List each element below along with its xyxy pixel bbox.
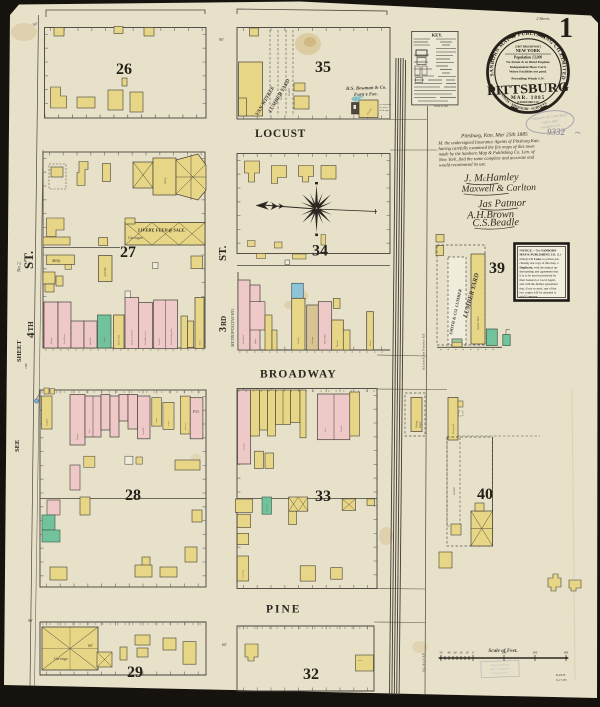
svg-text:Hotel: Hotel: [369, 340, 372, 347]
svg-text:K.H.H.: K.H.H.: [555, 673, 566, 677]
svg-text:No Steam & m Hand Engines: No Steam & m Hand Engines: [506, 60, 550, 64]
svg-text:Genl.& Drug Sto: Genl.& Drug Sto: [170, 328, 173, 345]
svg-text:Drugs & Stat'ry: Drugs & Stat'ry: [131, 329, 134, 346]
svg-text:ST.: ST.: [217, 245, 229, 261]
svg-text:SEE: SEE: [14, 440, 21, 452]
svg-text:Jas Patmor: Jas Patmor: [478, 198, 527, 210]
svg-text:50: 50: [440, 651, 444, 655]
svg-text:(CRAWFORD CO): (CRAWFORD CO): [517, 101, 539, 104]
svg-text:33: 33: [315, 488, 331, 505]
svg-text:9332: 9332: [547, 127, 566, 137]
svg-text:Independent Hose Carts: Independent Hose Carts: [510, 65, 547, 69]
svg-text:1: 1: [559, 13, 573, 44]
svg-text:PINE: PINE: [266, 604, 301, 616]
svg-text:6-17-85: 6-17-85: [556, 678, 567, 682]
svg-text:Genl.S.: Genl.S.: [297, 337, 300, 344]
svg-text:METROPOLITAN HO.: METROPOLITAN HO.: [230, 308, 235, 348]
svg-text:90': 90': [219, 37, 224, 42]
svg-text:Gro.: Gro.: [88, 428, 91, 433]
svg-text:40: 40: [448, 651, 452, 655]
svg-text:Furn.: Furn.: [199, 339, 202, 346]
svg-text:Carriages: Carriages: [128, 236, 143, 240]
svg-text:Planing M.: Planing M.: [452, 423, 455, 435]
svg-text:ST.: ST.: [21, 251, 36, 269]
svg-text:2 Sheets: 2 Sheets: [536, 16, 550, 21]
svg-text:no stoves: no stoves: [380, 106, 388, 109]
svg-text:Genl.S.: Genl.S.: [158, 338, 161, 345]
svg-text:PELHAM N.Y.: PELHAM N.Y.: [491, 672, 509, 676]
svg-text:Drug's: Drug's: [76, 433, 79, 441]
svg-text:Office: Office: [254, 338, 257, 344]
svg-text:St.L. & S.F. R.R.: St.L. & S.F. R.R.: [422, 652, 426, 672]
svg-text:100': 100': [24, 363, 28, 369]
svg-text:Population 13,000: Population 13,000: [514, 56, 542, 60]
svg-text:Hard.W: Hard.W: [89, 336, 92, 346]
svg-text:TH: TH: [27, 321, 35, 332]
svg-text:Lumber: Lumber: [453, 486, 456, 496]
svg-text:said Company.: said Company.: [520, 295, 539, 299]
svg-text:Gro.: Gro.: [324, 427, 327, 432]
svg-text:27: 27: [120, 244, 136, 261]
svg-text:LIVERY, FEED @ SALE.: LIVERY, FEED @ SALE.: [137, 228, 185, 233]
svg-text:Skat'g: Skat'g: [164, 177, 167, 184]
svg-text:NEW YORK: NEW YORK: [516, 48, 541, 53]
svg-text:39: 39: [489, 260, 505, 277]
svg-text:Mill'y: Mill'y: [156, 417, 158, 424]
svg-text:60': 60': [222, 642, 227, 647]
svg-text:30: 30: [454, 651, 458, 655]
svg-text:C.S.Beadle: C.S.Beadle: [472, 217, 519, 229]
svg-text:29: 29: [127, 664, 143, 681]
svg-text:B & S.: B & S.: [168, 420, 170, 426]
svg-text:4: 4: [25, 332, 37, 338]
svg-text:Lumber: Lumber: [288, 87, 291, 97]
svg-text:90': 90': [28, 618, 33, 623]
svg-text:60': 60': [88, 643, 93, 648]
svg-text:Water Facilities not good.: Water Facilities not good.: [509, 69, 547, 73]
svg-text:Bill'd Hall: Bill'd Hall: [118, 335, 121, 345]
svg-text:Genl.S.: Genl.S.: [340, 425, 343, 432]
svg-text:28: 28: [125, 487, 141, 504]
svg-text:lbr & shgs: lbr & shgs: [380, 110, 389, 112]
svg-text:Maxwell & Carlton: Maxwell & Carlton: [460, 183, 536, 195]
svg-text:300: 300: [564, 651, 569, 655]
svg-text:J. McHamley: J. McHamley: [464, 172, 519, 184]
svg-text:Met.Hotel: Met.Hotel: [242, 334, 245, 345]
svg-text:Carriage: Carriage: [243, 570, 245, 578]
svg-text:Bank W.: Bank W.: [185, 422, 187, 430]
svg-text:100: 100: [502, 651, 507, 655]
svg-text:Drug's: Drug's: [50, 337, 53, 345]
svg-text:No 2.: No 2.: [18, 261, 23, 273]
svg-text:35: 35: [315, 59, 331, 76]
svg-text:200: 200: [533, 651, 538, 655]
svg-text:St.Louis & San Francisco R.R.: St.Louis & San Francisco R.R.: [422, 333, 426, 370]
svg-text:40: 40: [477, 486, 493, 503]
svg-text:Storage: Storage: [311, 337, 314, 344]
svg-text:Genl.Store: Genl.Store: [63, 334, 66, 344]
svg-text:10: 10: [466, 651, 470, 655]
svg-text:Agr.Impls: Agr.Impls: [104, 267, 107, 278]
svg-text:3: 3: [218, 327, 229, 332]
svg-text:BROADWAY: BROADWAY: [260, 369, 337, 381]
svg-text:Depot: Depot: [419, 421, 422, 429]
svg-text:Scale of feet: Scale of feet: [434, 105, 448, 108]
svg-text:LOCUST: LOCUST: [255, 128, 306, 140]
svg-text:Genl.W.: Genl.W.: [142, 427, 145, 435]
svg-text:B.W.: B.W.: [358, 660, 363, 662]
svg-text:SHEET: SHEET: [16, 340, 23, 362]
svg-text:20: 20: [460, 651, 464, 655]
svg-text:P.O.: P.O.: [192, 409, 200, 414]
svg-text:Snuff M.: Snuff M.: [46, 418, 49, 426]
svg-text:Genl.S.: Genl.S.: [243, 443, 246, 450]
svg-text:Laund'y: Laund'y: [267, 504, 269, 513]
svg-text:KEY.: KEY.: [432, 33, 443, 38]
svg-text:Genl.Merch'se: Genl.Merch'se: [144, 331, 147, 345]
svg-text:Bill'd Hall: Bill'd Hall: [324, 334, 327, 344]
svg-text:Carriage: Carriage: [54, 657, 68, 661]
svg-text:Hardw.: Hardw.: [336, 340, 339, 348]
svg-text:no watchman: no watchman: [380, 103, 392, 106]
svg-text:Milly: Milly: [51, 258, 61, 263]
svg-text:MAR. 1885: MAR. 1885: [511, 95, 545, 101]
svg-text:32: 32: [303, 666, 319, 683]
svg-text:Lumber: Lumber: [280, 91, 283, 101]
svg-text:RD: RD: [220, 316, 228, 326]
svg-text:26: 26: [116, 61, 132, 78]
svg-text:Lumber Shed: Lumber Shed: [477, 316, 480, 331]
